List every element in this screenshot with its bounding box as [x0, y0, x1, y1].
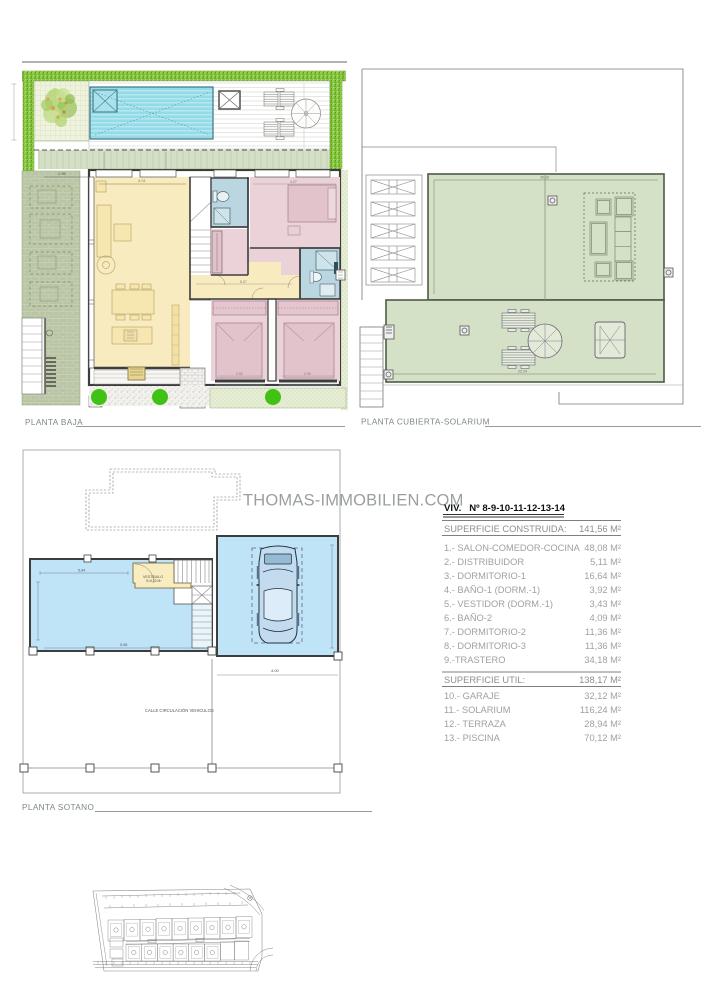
svg-text:5,11 M²: 5,11 M² [590, 557, 621, 567]
svg-text:3.- DORMITORIO-1: 3.- DORMITORIO-1 [444, 571, 526, 581]
svg-text:PLANTA BAJA: PLANTA BAJA [25, 418, 83, 427]
svg-text:141,56 M²: 141,56 M² [579, 524, 621, 534]
svg-text:CALLE CIRCULACIÓN VEHICULOS: CALLE CIRCULACIÓN VEHICULOS [145, 708, 214, 713]
svg-text:32,12 M²: 32,12 M² [584, 691, 621, 701]
svg-text:2.- DISTRIBUIDOR: 2.- DISTRIBUIDOR [444, 557, 524, 567]
svg-text:70,12 M²: 70,12 M² [584, 733, 621, 743]
svg-text:4,09 M²: 4,09 M² [589, 613, 621, 623]
svg-text:5,94: 5,94 [78, 569, 85, 573]
svg-text:4.00: 4.00 [271, 668, 280, 673]
svg-text:10.- GARAJE: 10.- GARAJE [444, 691, 500, 701]
svg-text:30.18: 30.18 [540, 176, 549, 180]
svg-text:1.- SALON-COMEDOR-COCINA: 1.- SALON-COMEDOR-COCINA [444, 543, 581, 553]
svg-text:6.- BAÑO-2: 6.- BAÑO-2 [444, 613, 492, 623]
svg-text:PLANTA SOTANO: PLANTA SOTANO [22, 803, 94, 812]
svg-text:2.99: 2.99 [58, 171, 67, 176]
svg-text:3,43 M²: 3,43 M² [589, 599, 621, 609]
svg-text:22.24: 22.24 [518, 370, 527, 374]
svg-text:2.92: 2.92 [236, 372, 243, 376]
svg-text:PLANTA CUBIERTA-SOLARIUM: PLANTA CUBIERTA-SOLARIUM [361, 418, 490, 427]
svg-text:8.- DORMITORIO-3: 8.- DORMITORIO-3 [444, 641, 526, 651]
svg-text:11,36 M²: 11,36 M² [585, 641, 621, 651]
svg-text:4.27: 4.27 [290, 180, 297, 184]
svg-text:34,18 M²: 34,18 M² [584, 655, 621, 665]
svg-text:5.07: 5.07 [240, 280, 247, 284]
svg-text:48,08 M²: 48,08 M² [584, 543, 621, 553]
svg-text:7.- DORMITORIO-2: 7.- DORMITORIO-2 [444, 627, 526, 637]
svg-text:9.-TRASTERO: 9.-TRASTERO [444, 655, 505, 665]
svg-text:2.90: 2.90 [304, 372, 311, 376]
svg-text:S=5,20 M²: S=5,20 M² [146, 579, 162, 583]
svg-text:VIV. Nº 8-9-10-11-12-13-14: VIV. Nº 8-9-10-11-12-13-14 [444, 503, 566, 514]
svg-text:3,92 M²: 3,92 M² [589, 585, 621, 595]
svg-text:5.- VESTIDOR (DORM.-1): 5.- VESTIDOR (DORM.-1) [444, 599, 553, 609]
svg-text:13.- PISCINA: 13.- PISCINA [444, 733, 501, 743]
svg-text:11.- SOLARIUM: 11.- SOLARIUM [444, 705, 510, 715]
svg-text:SUPERFICIE UTIL:: SUPERFICIE UTIL: [444, 675, 525, 685]
svg-text:11,36 M²: 11,36 M² [585, 627, 621, 637]
svg-text:16,64 M²: 16,64 M² [584, 571, 621, 581]
svg-text:THOMAS-IMMOBILIEN.COM: THOMAS-IMMOBILIEN.COM [243, 492, 464, 510]
svg-text:138,17 M²: 138,17 M² [579, 675, 621, 685]
svg-text:12.- TERRAZA: 12.- TERRAZA [444, 719, 507, 729]
svg-text:116,24 M²: 116,24 M² [580, 705, 621, 715]
svg-text:5,98: 5,98 [120, 643, 127, 647]
svg-text:4.01: 4.01 [138, 178, 147, 183]
svg-text:4.- BAÑO-1 (DORM.-1): 4.- BAÑO-1 (DORM.-1) [444, 585, 540, 595]
svg-text:28,94 M²: 28,94 M² [584, 719, 621, 729]
svg-text:SUPERFICIE CONSTRUIDA:: SUPERFICIE CONSTRUIDA: [444, 524, 566, 534]
